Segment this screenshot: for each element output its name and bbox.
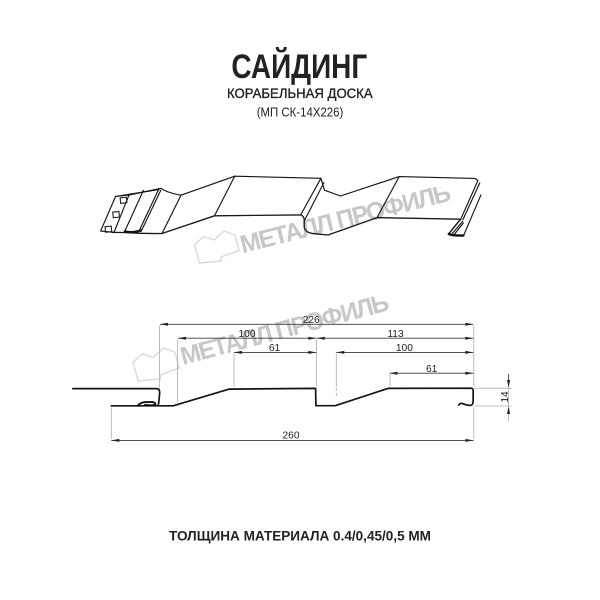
svg-text:14: 14 bbox=[500, 391, 511, 403]
svg-text:(МП СК-14Х226): (МП СК-14Х226) bbox=[257, 105, 344, 120]
svg-text:КОРАБЕЛЬНАЯ ДОСКА: КОРАБЕЛЬНАЯ ДОСКА bbox=[227, 86, 373, 101]
svg-text:САЙДИНГ: САЙДИНГ bbox=[231, 47, 367, 86]
svg-text:100: 100 bbox=[396, 343, 413, 354]
svg-text:61: 61 bbox=[269, 343, 281, 354]
svg-text:ТОЛЩИНА МАТЕРИАЛА 0.4/0,45/0,5: ТОЛЩИНА МАТЕРИАЛА 0.4/0,45/0,5 ММ bbox=[169, 528, 431, 543]
svg-text:260: 260 bbox=[283, 431, 300, 442]
svg-text:МЕТАЛЛ ПРОФИЛЬ: МЕТАЛЛ ПРОФИЛЬ bbox=[237, 180, 453, 259]
svg-text:МЕТАЛЛ ПРОФИЛЬ: МЕТАЛЛ ПРОФИЛЬ bbox=[178, 289, 392, 370]
svg-text:100: 100 bbox=[239, 329, 256, 340]
svg-text:113: 113 bbox=[387, 329, 404, 340]
svg-text:61: 61 bbox=[426, 364, 438, 375]
svg-text:226: 226 bbox=[303, 315, 320, 326]
